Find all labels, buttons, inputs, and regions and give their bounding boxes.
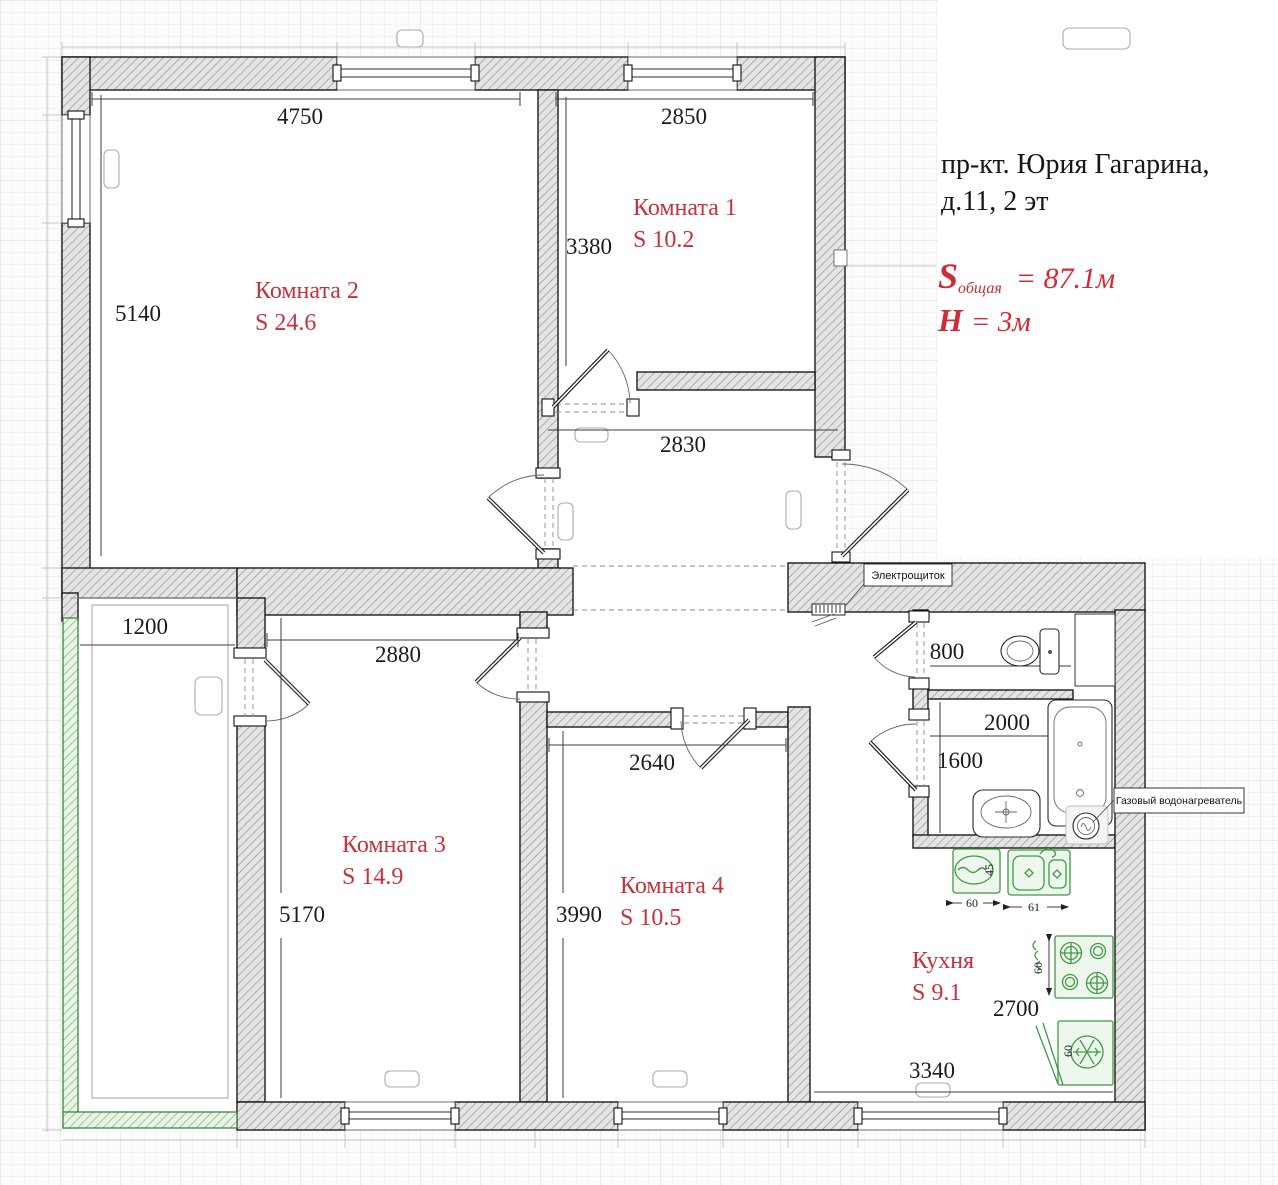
- radiator: [1063, 28, 1130, 49]
- kitchen-sink-icon: [1008, 849, 1070, 895]
- dim-room4-width: 2640: [629, 750, 675, 775]
- window-room4-bottom: [614, 1102, 727, 1130]
- room2-area: S 24.6: [255, 310, 316, 336]
- radiator: [558, 503, 573, 540]
- floor-plan-drawing: 4750 2850 5140 3380 2830 1200 2880 5170 …: [0, 0, 1278, 1185]
- gas-heater-icon: [1066, 806, 1108, 844]
- dim-room3-depth: 5170: [279, 902, 325, 927]
- dim-room1-depth: 3380: [566, 234, 612, 259]
- washer-depth-label: 45: [982, 864, 996, 876]
- room4-area: S 10.5: [620, 905, 681, 931]
- dim-room4-depth: 3990: [556, 902, 602, 927]
- room2-label: Комната 2: [255, 278, 359, 304]
- window-room1-top: [624, 57, 741, 90]
- room1-area: S 10.2: [633, 227, 694, 253]
- window-room2-top: [333, 57, 479, 90]
- kitchen-label: Кухня: [912, 948, 974, 974]
- radiator: [397, 30, 423, 47]
- dim-bathroom-width: 2000: [984, 710, 1030, 735]
- window-room2-left: [62, 111, 90, 227]
- dim-room1-width: 2850: [661, 104, 707, 129]
- address-line-2: д.11, 2 эт: [941, 186, 1048, 217]
- washer-width-label: 60: [966, 896, 978, 910]
- room3-label: Комната 3: [342, 832, 446, 858]
- dim-wc-width: 800: [930, 639, 965, 664]
- dim-room3-width: 2880: [375, 642, 421, 667]
- ventilation-shaft: [1075, 614, 1115, 686]
- bath-sink-icon: [973, 790, 1040, 837]
- room4-label: Комната 4: [620, 873, 724, 899]
- address-line-1: пр-кт. Юрия Гагарина,: [941, 149, 1210, 180]
- wall-notch: [834, 250, 847, 266]
- ceiling-height-formula: H= 3м: [937, 302, 1031, 338]
- room3-area: S 14.9: [342, 864, 403, 890]
- dim-room2-width: 4750: [277, 104, 323, 129]
- fridge-width-label: 60: [1061, 1045, 1075, 1057]
- electrical-panel-label: Электрощиток: [871, 570, 945, 582]
- window-kitchen-bottom: [854, 1102, 1007, 1130]
- stove-width-label: 60: [1031, 962, 1045, 974]
- room1-label: Комната 1: [633, 195, 737, 221]
- kitchen-area: S 9.1: [912, 980, 961, 1006]
- radiator: [786, 491, 801, 529]
- dim-hallway-width: 2830: [660, 432, 706, 457]
- dim-bathroom-depth: 1600: [937, 748, 983, 773]
- window-room3-bottom: [341, 1102, 459, 1130]
- dim-kitchen-depth: 2700: [993, 996, 1039, 1021]
- radiator: [195, 677, 222, 715]
- dim-kitchen-width: 3340: [909, 1058, 955, 1083]
- radiator: [385, 1071, 419, 1087]
- washing-machine-icon: 45: [953, 849, 1000, 893]
- gas-heater-label: Газовый водонагреватель: [1116, 795, 1243, 807]
- floor-plan-page: 4750 2850 5140 3380 2830 1200 2880 5170 …: [0, 0, 1278, 1185]
- kitchen-sink-width-label: 61: [1028, 900, 1040, 914]
- radiator: [104, 150, 119, 188]
- radiator: [653, 1071, 687, 1087]
- radiator: [916, 1083, 950, 1097]
- dim-room2-depth: 5140: [115, 301, 161, 326]
- dim-balcony-width: 1200: [122, 614, 168, 639]
